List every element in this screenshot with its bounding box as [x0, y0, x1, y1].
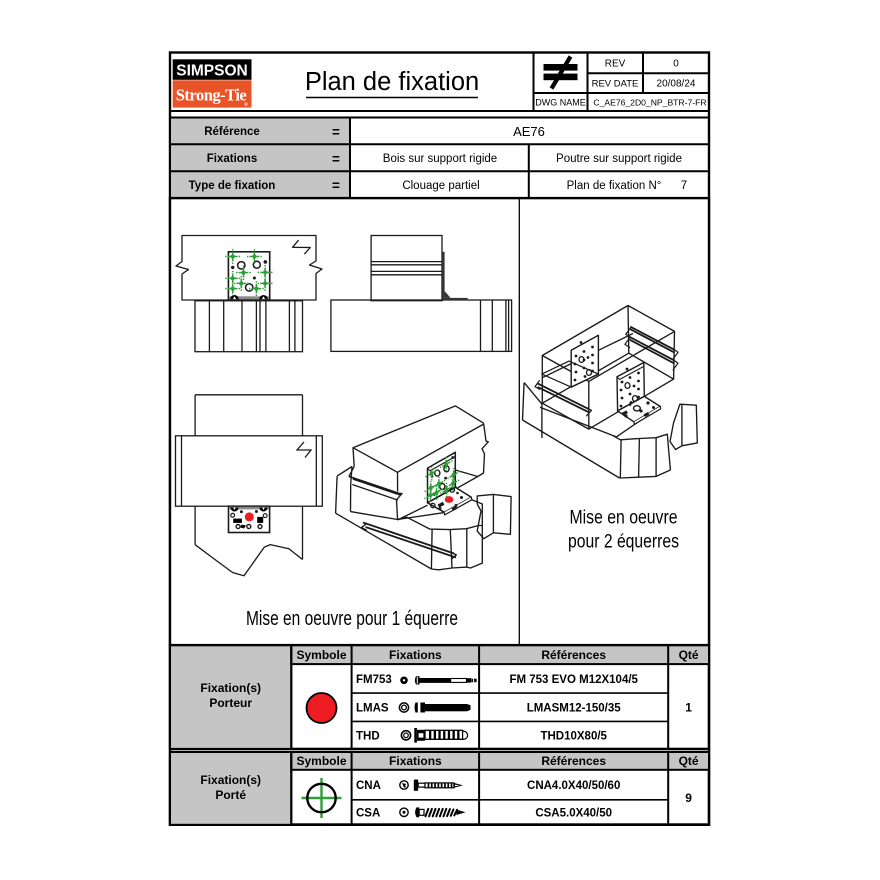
svg-text:LMASM12-150/35: LMASM12-150/35 — [527, 703, 622, 715]
svg-text:=: = — [332, 151, 340, 166]
svg-text:Fixation(s): Fixation(s) — [200, 773, 261, 787]
svg-text:CSA5.0X40/50: CSA5.0X40/50 — [535, 808, 612, 820]
svg-text:Type de fixation: Type de fixation — [189, 180, 276, 192]
svg-text:=: = — [332, 125, 340, 140]
svg-text:C_AE76_2D0_NP_BTR-7-FR: C_AE76_2D0_NP_BTR-7-FR — [593, 98, 706, 108]
svg-text:Fixations: Fixations — [389, 648, 442, 662]
svg-text:9: 9 — [685, 791, 692, 805]
svg-text:Plan de fixation N°: Plan de fixation N° — [567, 180, 662, 192]
svg-text:0: 0 — [673, 59, 679, 70]
svg-text:=: = — [332, 178, 340, 193]
svg-text:Plan de fixation: Plan de fixation — [305, 68, 479, 96]
svg-text:7: 7 — [681, 180, 687, 192]
svg-text:Références: Références — [541, 648, 606, 662]
svg-text:FM753: FM753 — [356, 674, 392, 686]
svg-text:CNA: CNA — [356, 780, 381, 792]
svg-text:Qté: Qté — [679, 754, 699, 768]
svg-text:20/08/24: 20/08/24 — [657, 79, 696, 90]
svg-text:Mise en oeuvre: Mise en oeuvre — [570, 508, 678, 529]
svg-text:DWG NAME: DWG NAME — [535, 98, 586, 108]
svg-text:FM 753 EVO M12X104/5: FM 753 EVO M12X104/5 — [509, 674, 638, 686]
svg-text:REV: REV — [605, 59, 626, 70]
svg-text:Clouage partiel: Clouage partiel — [402, 180, 479, 192]
svg-text:Symbole: Symbole — [296, 754, 346, 768]
svg-text:Références: Références — [541, 754, 606, 768]
svg-text:CNA4.0X40/50/60: CNA4.0X40/50/60 — [527, 780, 620, 792]
svg-text:1: 1 — [685, 701, 692, 715]
svg-text:pour 2 équerres: pour 2 équerres — [568, 532, 679, 553]
svg-text:Fixations: Fixations — [207, 153, 257, 165]
svg-text:Référence: Référence — [204, 126, 260, 138]
svg-text:SIMPSON: SIMPSON — [176, 62, 247, 79]
svg-text:THD10X80/5: THD10X80/5 — [540, 731, 607, 743]
svg-text:Bois sur support rigide: Bois sur support rigide — [383, 153, 497, 165]
svg-text:Qté: Qté — [679, 648, 699, 662]
svg-text:Symbole: Symbole — [296, 648, 346, 662]
svg-text:Fixations: Fixations — [389, 754, 442, 768]
svg-text:CSA: CSA — [356, 808, 380, 820]
svg-text:Strong-Tie: Strong-Tie — [176, 86, 247, 105]
svg-text:LMAS: LMAS — [356, 703, 389, 715]
svg-text:THD: THD — [356, 731, 380, 743]
svg-text:Porteur: Porteur — [209, 696, 252, 710]
svg-text:Poutre sur support rigide: Poutre sur support rigide — [556, 153, 682, 165]
svg-text:Mise en oeuvre pour 1 équerre: Mise en oeuvre pour 1 équerre — [246, 608, 458, 630]
svg-text:REV DATE: REV DATE — [592, 79, 639, 90]
svg-text:AE76: AE76 — [513, 124, 545, 139]
svg-text:Porté: Porté — [215, 788, 246, 802]
svg-text:Fixation(s): Fixation(s) — [200, 681, 261, 695]
